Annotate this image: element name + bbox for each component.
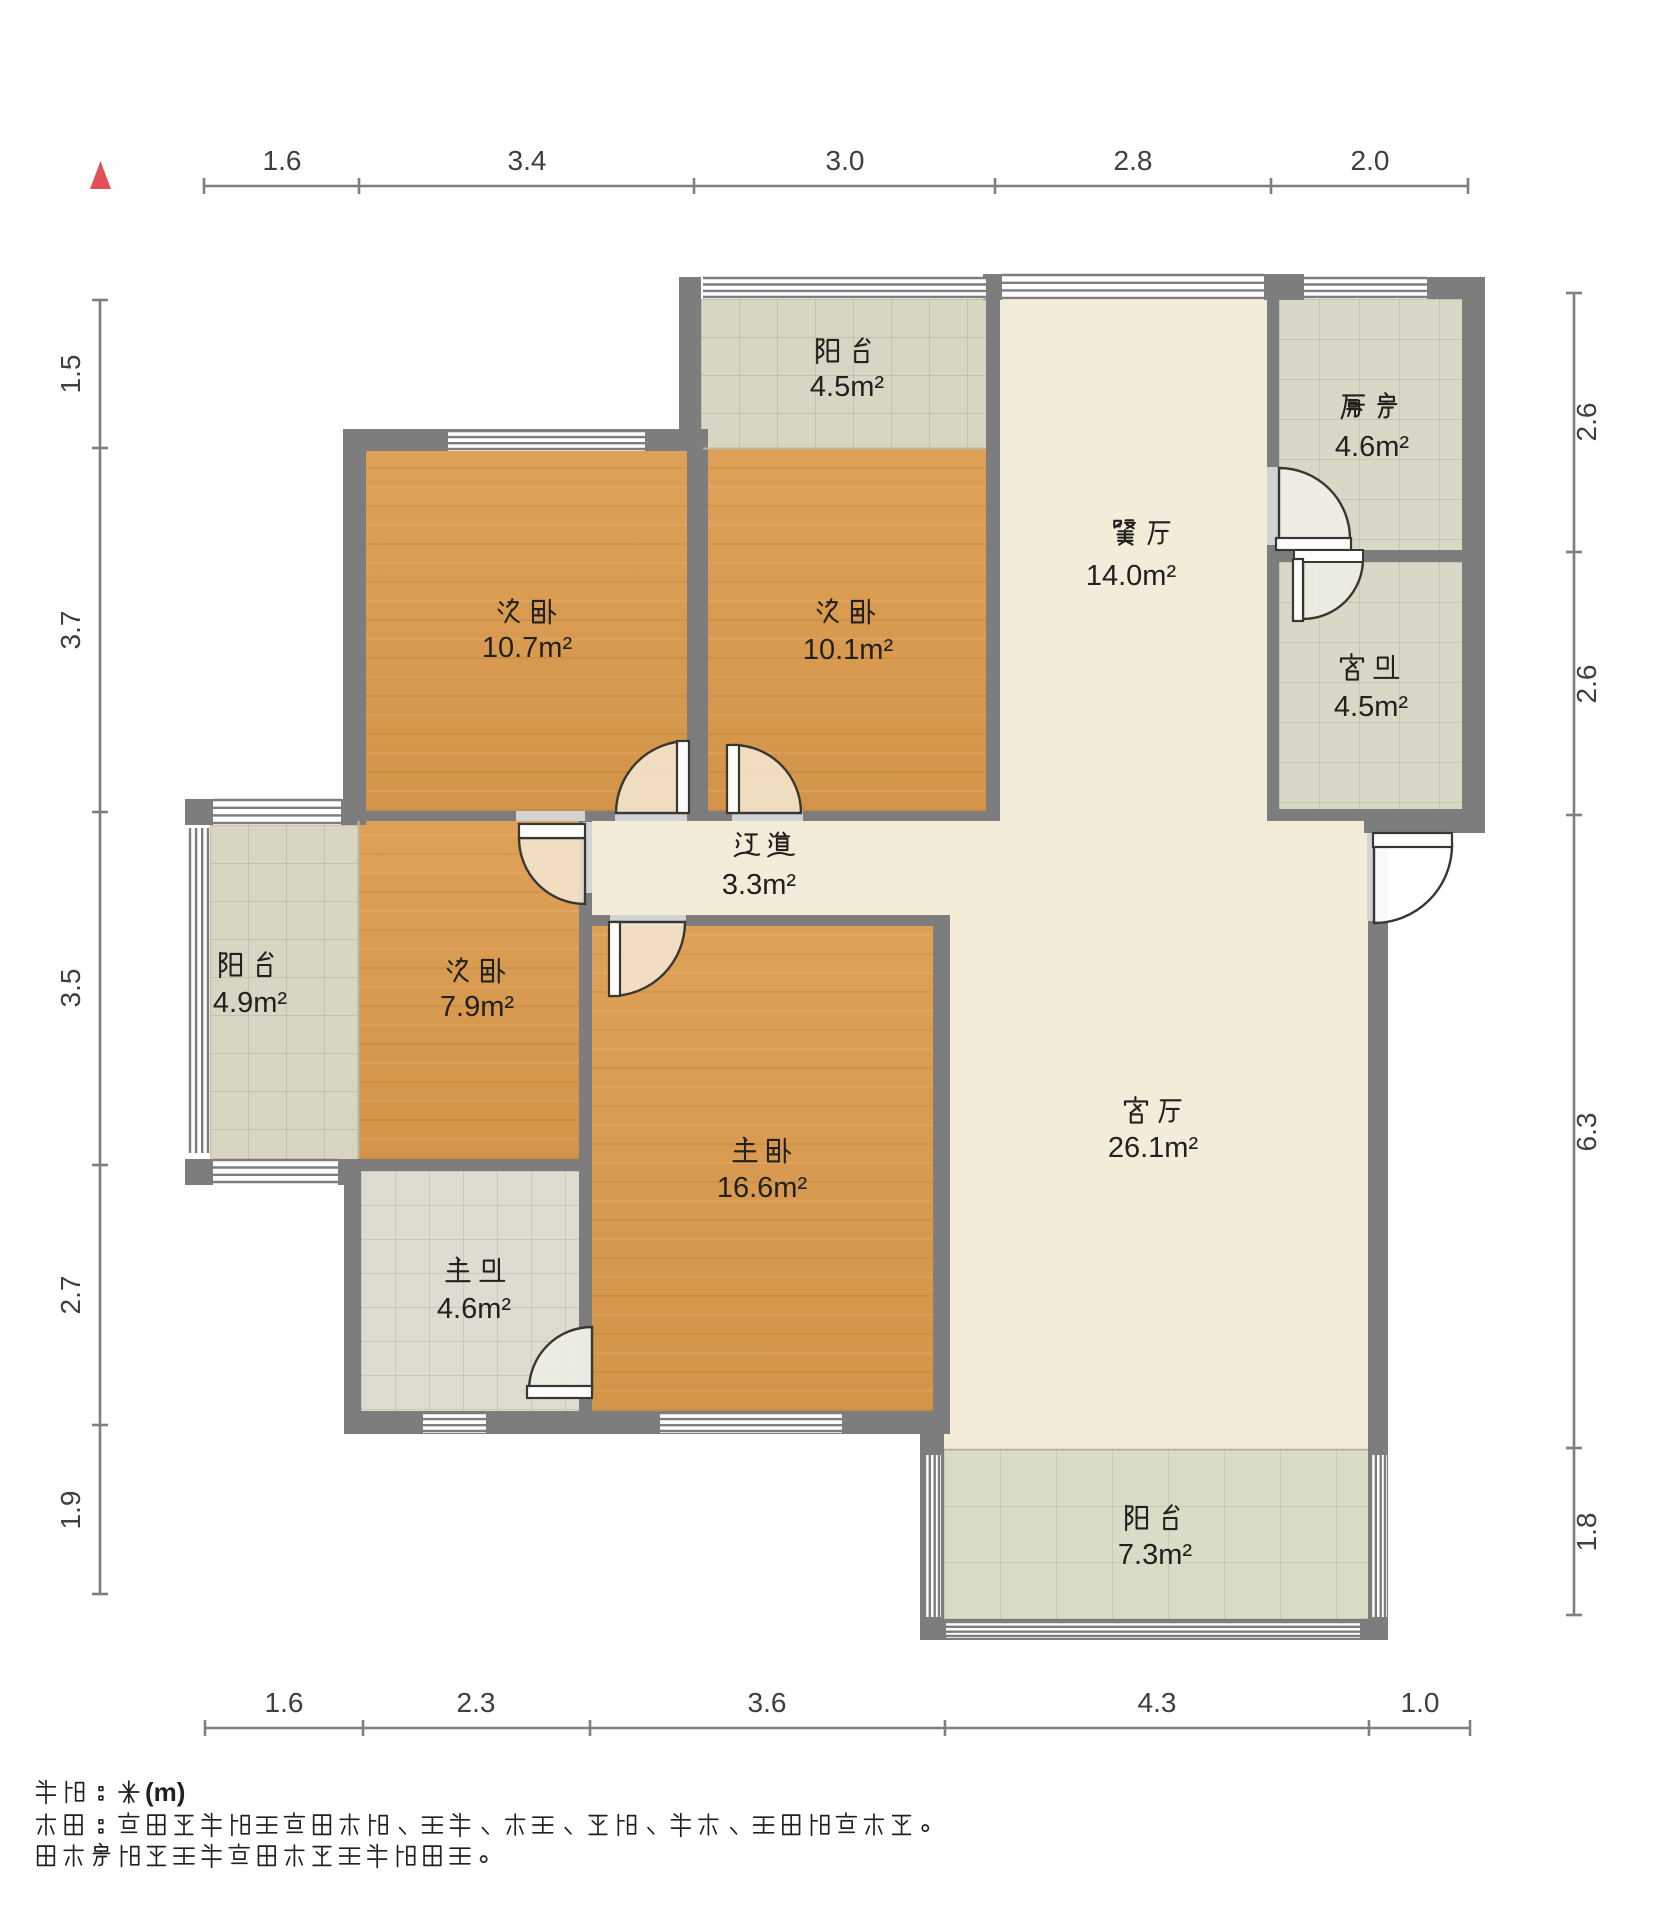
svg-text:1.6: 1.6 xyxy=(263,145,302,176)
svg-text:3.6: 3.6 xyxy=(748,1687,787,1718)
svg-text:2.0: 2.0 xyxy=(1351,145,1390,176)
svg-text:2.6: 2.6 xyxy=(1571,403,1602,442)
svg-text:2.6: 2.6 xyxy=(1571,665,1602,704)
svg-text:4.9m²: 4.9m² xyxy=(213,987,287,1019)
svg-text:4.5m²: 4.5m² xyxy=(810,371,884,403)
svg-text:1.0: 1.0 xyxy=(1401,1687,1440,1718)
svg-text:3.4: 3.4 xyxy=(508,145,547,176)
svg-text:7.3m²: 7.3m² xyxy=(1118,1539,1192,1571)
svg-text:4.6m²: 4.6m² xyxy=(437,1293,511,1325)
svg-text:1.8: 1.8 xyxy=(1571,1513,1602,1552)
svg-text:1.6: 1.6 xyxy=(265,1687,304,1718)
svg-text:16.6m²: 16.6m² xyxy=(717,1172,808,1204)
svg-text:14.0m²: 14.0m² xyxy=(1086,560,1177,592)
svg-text:3.5: 3.5 xyxy=(55,969,86,1008)
svg-text:26.1m²: 26.1m² xyxy=(1108,1132,1199,1164)
svg-text:3.0: 3.0 xyxy=(826,145,865,176)
svg-text:4.5m²: 4.5m² xyxy=(1334,691,1408,723)
svg-text:6.3: 6.3 xyxy=(1571,1113,1602,1152)
svg-text:(m): (m) xyxy=(145,1777,185,1807)
svg-text:2.7: 2.7 xyxy=(55,1276,86,1315)
svg-text:4.6m²: 4.6m² xyxy=(1335,431,1409,463)
svg-text:1.5: 1.5 xyxy=(55,355,86,394)
svg-text:4.3: 4.3 xyxy=(1138,1687,1177,1718)
svg-text:1.9: 1.9 xyxy=(55,1491,86,1530)
svg-text:7.9m²: 7.9m² xyxy=(440,991,514,1023)
svg-text:3.7: 3.7 xyxy=(55,611,86,650)
svg-text:2.3: 2.3 xyxy=(457,1687,496,1718)
svg-text:10.7m²: 10.7m² xyxy=(482,632,573,664)
svg-text:2.8: 2.8 xyxy=(1114,145,1153,176)
svg-text:10.1m²: 10.1m² xyxy=(803,634,894,666)
svg-text:3.3m²: 3.3m² xyxy=(722,869,796,901)
